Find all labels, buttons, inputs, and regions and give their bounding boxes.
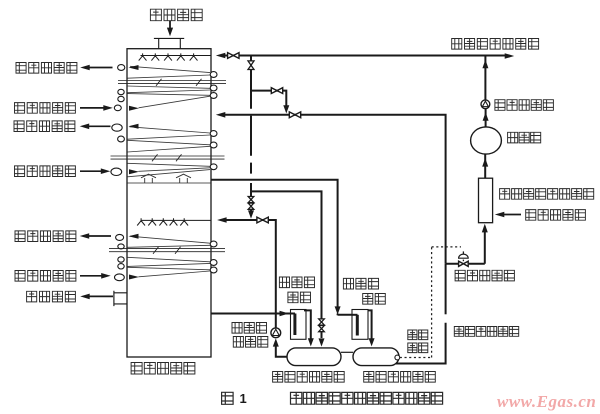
svg-text:www.Egas.cn: www.Egas.cn [497, 392, 596, 411]
svg-text:1: 1 [240, 391, 247, 406]
